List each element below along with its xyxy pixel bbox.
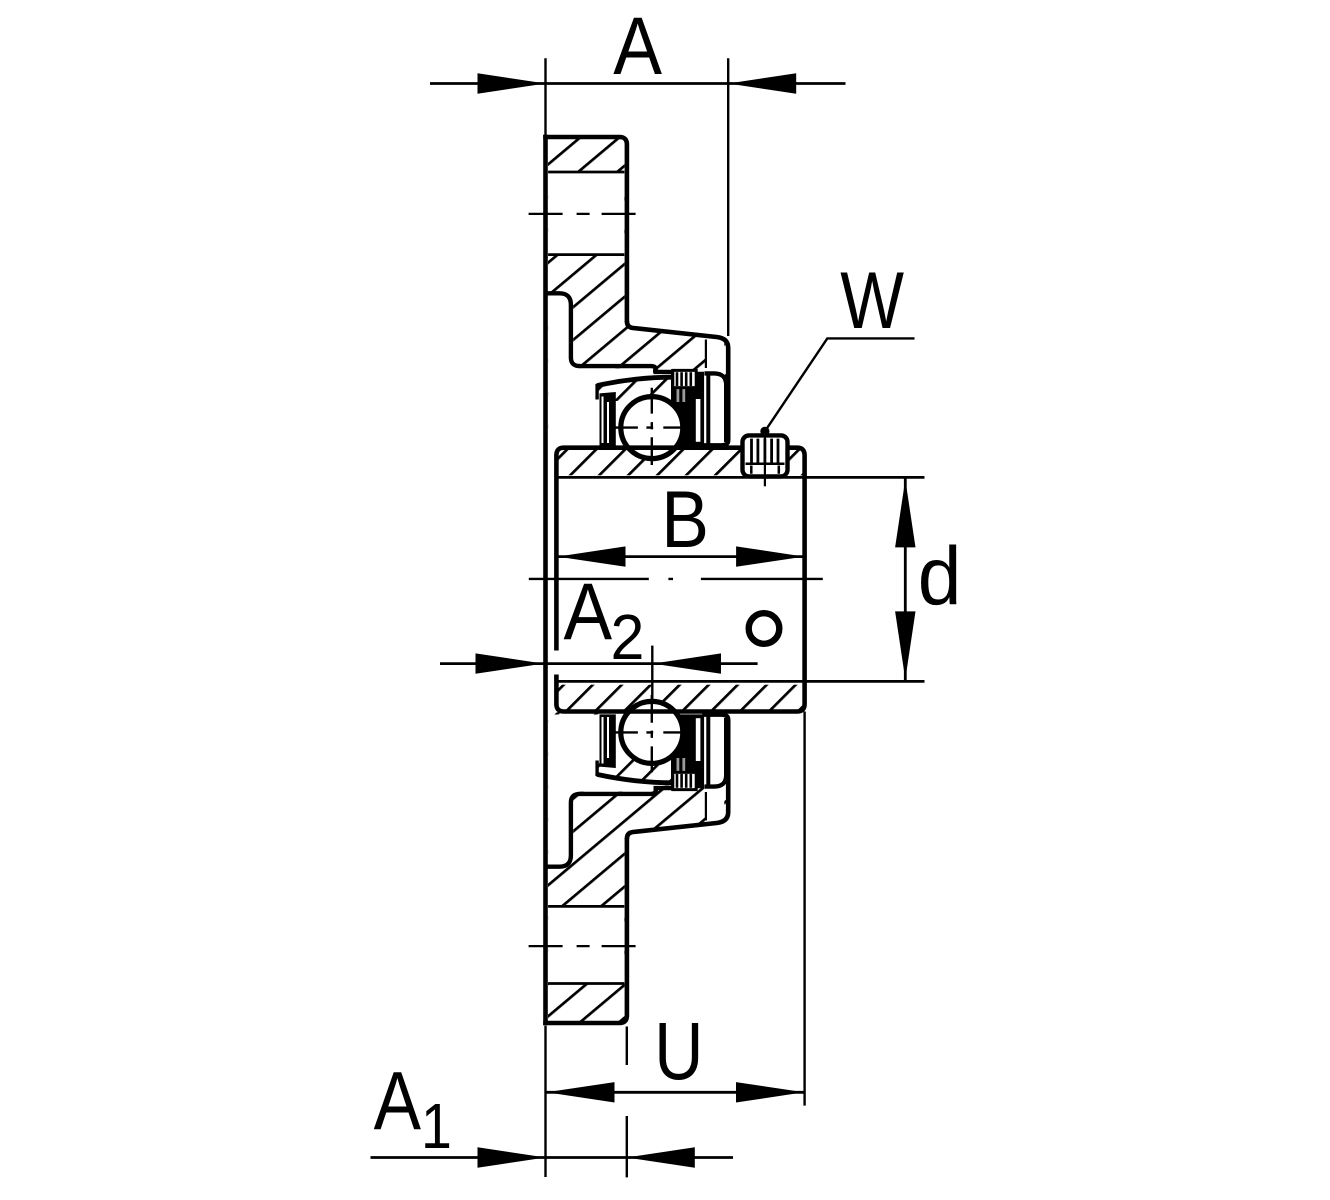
svg-text:A: A xyxy=(374,1055,422,1147)
svg-text:1: 1 xyxy=(421,1091,452,1163)
svg-text:A: A xyxy=(613,1,662,92)
svg-text:d: d xyxy=(918,531,962,623)
svg-text:W: W xyxy=(840,254,904,345)
svg-text:B: B xyxy=(661,475,709,565)
svg-text:U: U xyxy=(654,1005,703,1096)
svg-text:2: 2 xyxy=(611,603,645,673)
svg-text:A: A xyxy=(564,568,613,657)
